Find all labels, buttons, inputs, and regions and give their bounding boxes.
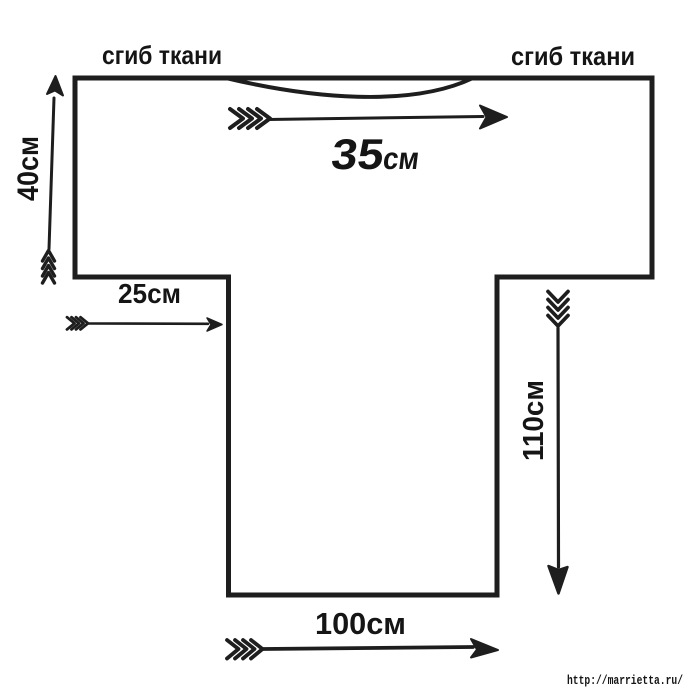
svg-text:http://marrietta.ru/: http://marrietta.ru/ (567, 673, 683, 688)
svg-text:100см: 100см (315, 606, 406, 641)
svg-text:сгиб ткани: сгиб ткани (102, 40, 222, 70)
svg-text:сгиб ткани: сгиб ткани (511, 41, 635, 71)
svg-text:25см: 25см (118, 278, 181, 309)
svg-text:110см: 110см (518, 380, 550, 461)
svg-text:40см: 40см (12, 136, 45, 201)
